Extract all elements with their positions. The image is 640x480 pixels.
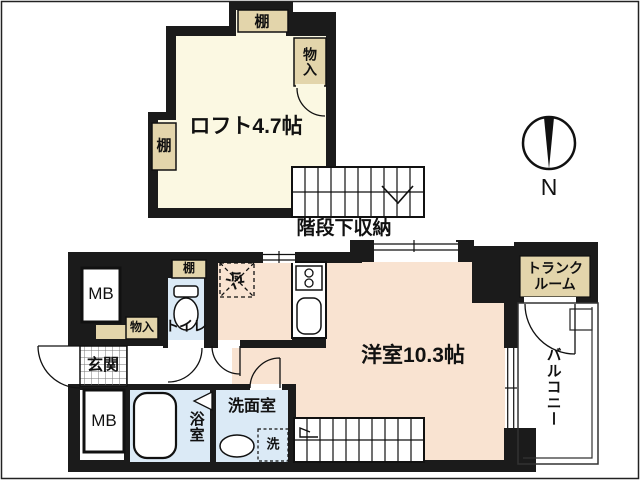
compass-north-label: N [541, 174, 558, 200]
trunk-room-line1: トランク [527, 260, 583, 276]
compass-needle-icon [544, 118, 554, 170]
trunk-room-label: トランク ルーム [527, 260, 583, 292]
window-left [263, 251, 295, 263]
floor-shelf-strip [96, 325, 126, 339]
toilet-shelf-label: 棚 [183, 262, 195, 276]
toilet-door-gap [168, 340, 204, 348]
kitchen-sink-icon [297, 298, 321, 334]
window-balcony [505, 348, 517, 428]
toilet-tank-icon [174, 286, 198, 297]
bath-label: 浴室 [187, 411, 204, 443]
floor-plan: 棚 物入 ロフト4.7帖 棚 階段下収納 N MB 棚 トイレ 物入 玄関 冷 … [0, 0, 640, 480]
loft-shelf-top-label: 棚 [254, 13, 269, 30]
balcony-label: バルコニー [544, 347, 561, 427]
under-stairs-storage-label: 階段下収納 [296, 218, 391, 240]
mb-bottom-label: MB [91, 411, 117, 431]
staircase-upper [292, 167, 424, 217]
washroom-label: 洗面室 [228, 398, 276, 416]
staircase-lower [294, 418, 424, 462]
loft-name-label: ロフト4.7帖 [189, 115, 302, 139]
loft-shelf-left-label: 棚 [156, 137, 171, 154]
washbasin-icon [220, 435, 254, 457]
loft-closet-door-gap [296, 84, 324, 89]
balcony-notch [570, 309, 592, 330]
washroom-door-gap [250, 384, 282, 390]
main-room-label: 洋室10.3帖 [361, 344, 465, 368]
kitchen-unit [292, 262, 326, 338]
trunk-room-line2: ルーム [527, 276, 583, 292]
toilet-label: トイレ [165, 318, 207, 334]
room-door-gap [218, 340, 240, 348]
window-top [374, 240, 458, 262]
compass [523, 117, 575, 169]
washer-label: 洗 [266, 438, 279, 453]
mb-top-label: MB [88, 284, 114, 304]
loft-closet-label: 物入 [302, 47, 318, 77]
entrance-door-arc [38, 346, 80, 388]
floor-closet-label: 物入 [130, 321, 154, 335]
bathtub-icon [134, 393, 176, 458]
bath-washroom [130, 384, 288, 462]
entrance-label: 玄関 [87, 357, 119, 375]
